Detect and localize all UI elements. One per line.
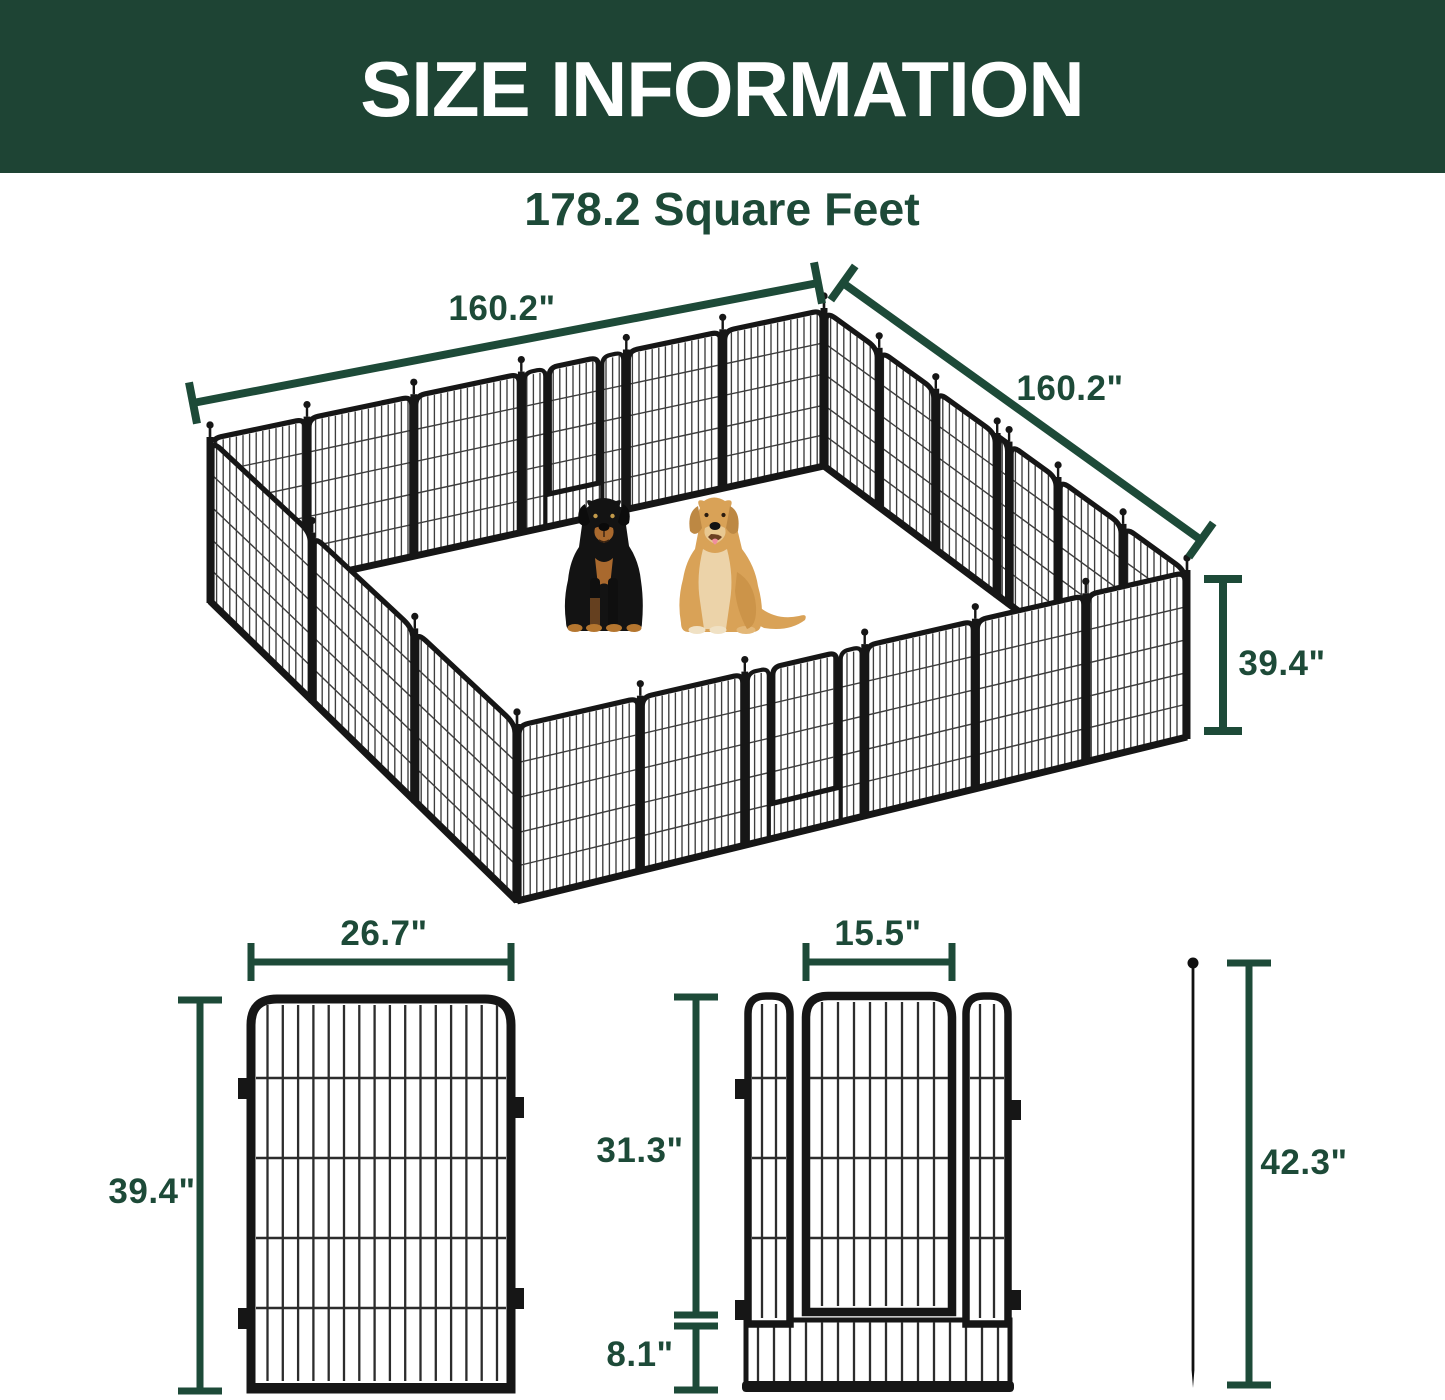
svg-text:31.3": 31.3": [596, 1131, 683, 1170]
svg-text:39.4": 39.4": [108, 1172, 195, 1211]
svg-text:SIZE INFORMATION: SIZE INFORMATION: [360, 45, 1084, 133]
svg-text:8.1": 8.1": [606, 1335, 673, 1374]
svg-text:39.4": 39.4": [1238, 644, 1325, 683]
svg-text:178.2 Square Feet: 178.2 Square Feet: [524, 183, 919, 235]
svg-text:26.7": 26.7": [340, 914, 427, 953]
svg-text:15.5": 15.5": [834, 914, 921, 953]
svg-text:160.2": 160.2": [448, 289, 555, 328]
svg-text:42.3": 42.3": [1260, 1143, 1347, 1182]
svg-text:160.2": 160.2": [1016, 369, 1123, 408]
